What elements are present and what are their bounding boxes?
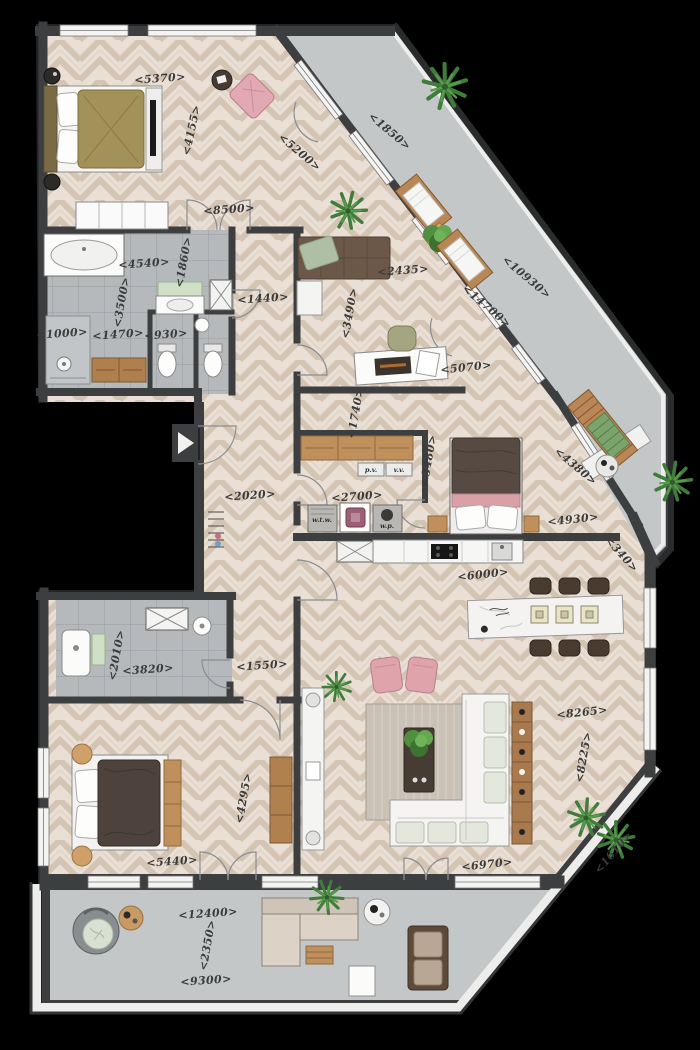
sideboard-3 — [270, 757, 292, 843]
shaft-bathroom2 — [146, 608, 188, 630]
bench-2b — [524, 516, 539, 532]
label-pv: p.v. — [365, 466, 377, 474]
toilet-2 — [204, 344, 222, 377]
armchair-pink-2 — [405, 656, 438, 694]
window-right-1 — [644, 588, 656, 648]
label-vv: v.v. — [394, 466, 405, 474]
window-right-2 — [644, 668, 656, 750]
bench-2a — [428, 516, 447, 532]
bathroom-cabinet — [92, 358, 146, 382]
balcony-table — [596, 455, 618, 477]
window-top-2 — [148, 25, 256, 36]
bathtub — [44, 234, 124, 276]
terrace-side-table — [119, 906, 143, 930]
wardrobe-master — [76, 202, 168, 229]
bed-master — [44, 86, 162, 172]
entrance-marker — [172, 424, 198, 462]
window-top-1 — [60, 25, 128, 36]
pouf-2 — [72, 846, 92, 866]
window-bottom-2 — [148, 876, 193, 888]
nightstand-2 — [44, 174, 60, 190]
label-wp: w.p. — [380, 522, 394, 530]
window-bottom-3 — [262, 876, 318, 888]
bed-2 — [450, 438, 522, 534]
shaft-bathroom — [210, 280, 232, 310]
sink-drain — [200, 624, 205, 629]
bistro-table — [364, 899, 390, 925]
side-table-round — [212, 70, 232, 90]
column-unit — [302, 688, 324, 850]
egg-chair — [73, 908, 119, 954]
desk — [354, 347, 448, 385]
window-left-1 — [38, 748, 49, 798]
desk-chair — [388, 326, 416, 351]
corner-sink — [195, 318, 209, 332]
floor-plan-page: <5370> <4155> <5200> <8500> <1850> <1093… — [0, 0, 700, 1050]
planter-table — [349, 966, 375, 996]
toilet-1 — [158, 344, 176, 377]
nightstand-1 — [44, 68, 60, 84]
washing-machine — [340, 503, 370, 532]
pendant-lights — [531, 606, 598, 623]
label-wtw: w.t.w. — [312, 516, 332, 524]
outdoor-armchair — [408, 926, 448, 990]
armchair-pink-1 — [370, 656, 403, 694]
window-bottom-1 — [88, 876, 140, 888]
kitchen-shaft — [337, 541, 373, 562]
window-left-2 — [38, 808, 49, 866]
window-bottom-4 — [455, 876, 540, 888]
shelf-unit — [512, 702, 532, 844]
floor-plan-svg: <5370> <4155> <5200> <8500> <1850> <1093… — [0, 0, 700, 1050]
kitchen-counter — [373, 540, 523, 563]
bed-3 — [72, 755, 181, 850]
pouf-1 — [72, 744, 92, 764]
cabinet-study — [297, 281, 322, 315]
coffee-table — [404, 728, 434, 792]
nightstand-lamp — [53, 72, 57, 76]
sofa-study — [298, 235, 390, 279]
